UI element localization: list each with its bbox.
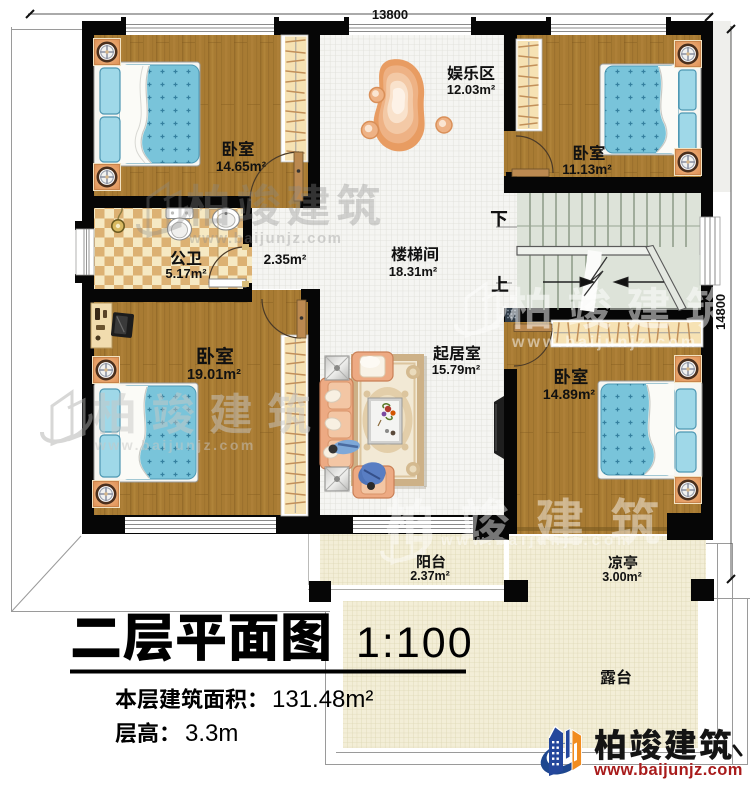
svg-text:18.31m²: 18.31m² (389, 264, 438, 279)
svg-text:14.89m²: 14.89m² (543, 386, 595, 402)
svg-text:www.baijunjz.com: www.baijunjz.com (440, 532, 634, 549)
svg-text:13800: 13800 (372, 7, 408, 22)
svg-text:3.00m²: 3.00m² (602, 570, 642, 584)
svg-text:www.baijunjz.com: www.baijunjz.com (94, 437, 256, 453)
svg-text:12.03m²: 12.03m² (447, 82, 496, 97)
svg-text:11.13m²: 11.13m² (562, 162, 612, 177)
svg-text:www.baijunjz.com: www.baijunjz.com (593, 761, 743, 779)
svg-text:2.37m²: 2.37m² (410, 569, 450, 583)
svg-text:1:100: 1:100 (356, 619, 474, 667)
svg-text:3.3m: 3.3m (185, 720, 238, 747)
svg-text:2.35m²: 2.35m² (264, 252, 307, 267)
svg-text:15.79m²: 15.79m² (432, 362, 481, 377)
svg-text:131.48m²: 131.48m² (272, 686, 373, 713)
svg-text:19.01m²: 19.01m² (187, 367, 241, 383)
svg-text:www.baijunjz.com: www.baijunjz.com (511, 334, 698, 351)
svg-text:14.65m²: 14.65m² (216, 159, 267, 174)
svg-text:www.baijunjz.com: www.baijunjz.com (188, 230, 342, 247)
svg-text:14800: 14800 (713, 294, 728, 330)
svg-text:5.17m²: 5.17m² (165, 266, 207, 281)
